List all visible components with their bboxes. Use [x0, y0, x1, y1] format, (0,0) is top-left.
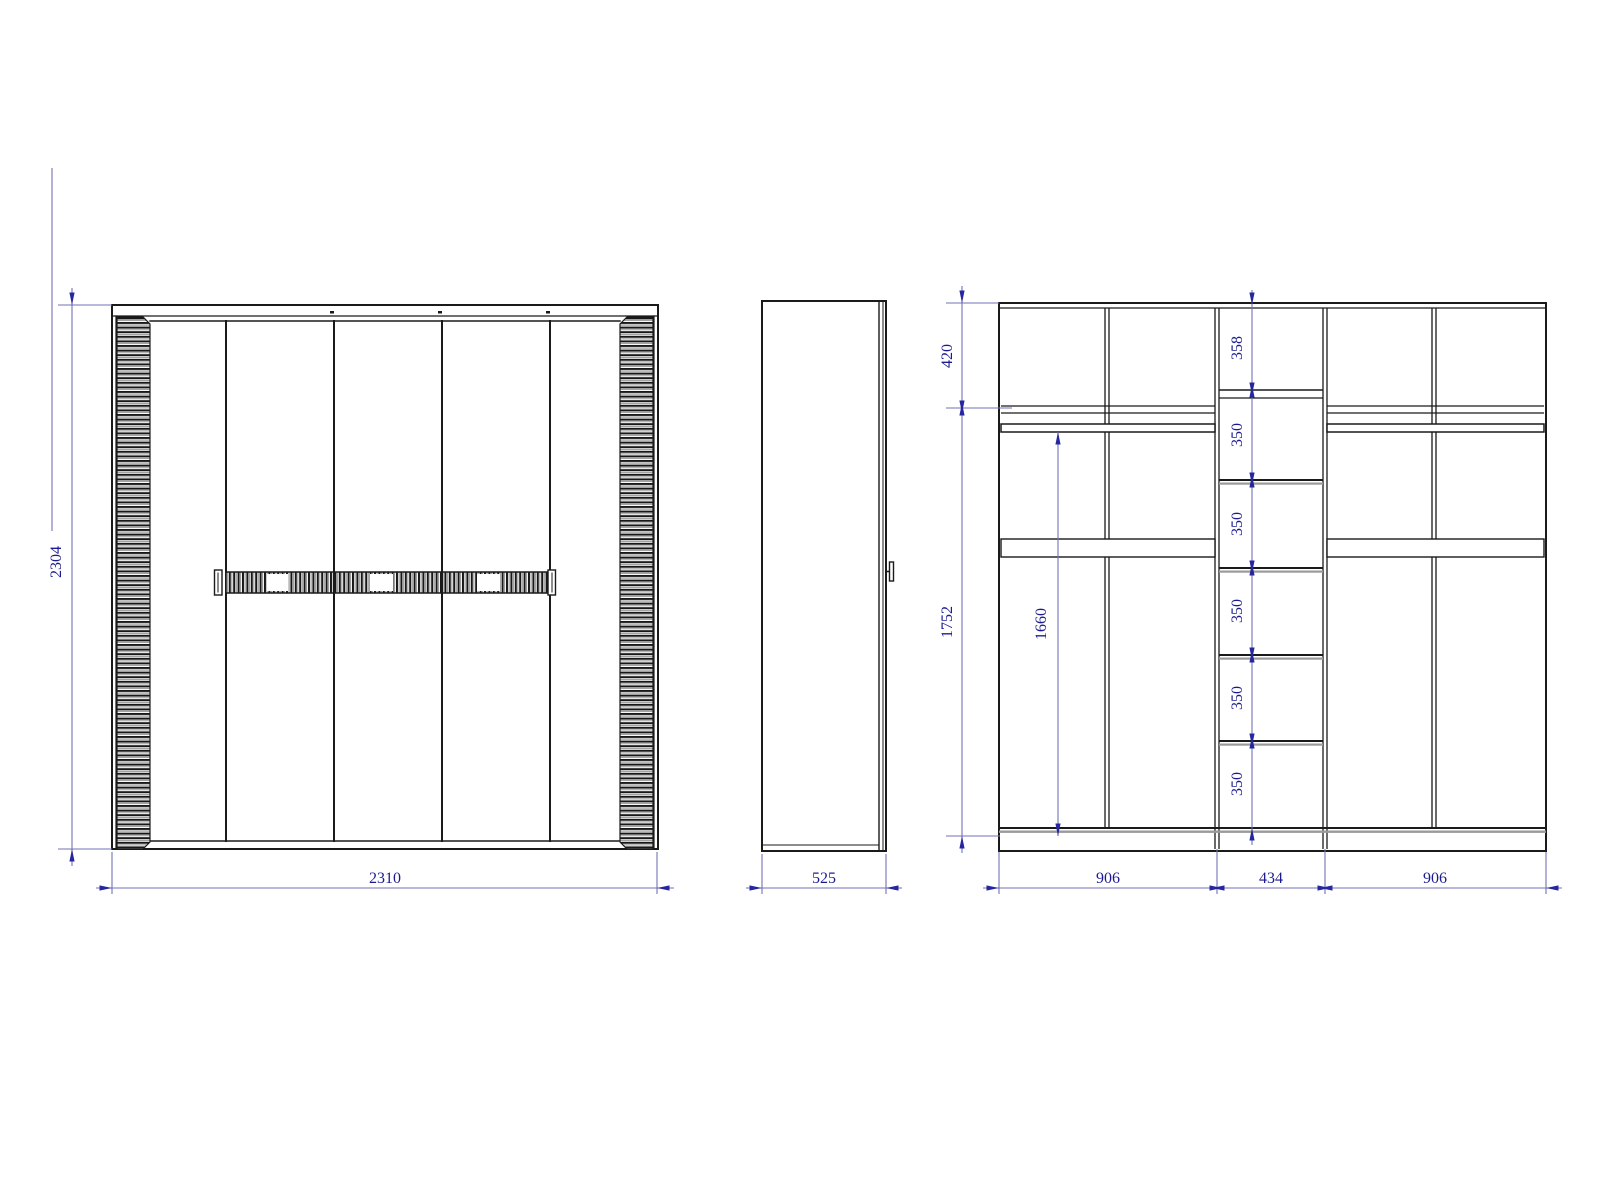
front-height-label: 2304	[48, 546, 65, 578]
cubby-gap-label: 358	[1229, 336, 1246, 360]
side-outer-box	[762, 301, 886, 851]
internal-top-height-label: 420	[939, 344, 956, 368]
arrowhead	[1212, 885, 1225, 890]
internal-body-height-label: 1752	[939, 606, 956, 638]
arrowhead	[886, 885, 899, 890]
cubby-gap-label: 350	[1229, 686, 1246, 710]
hanging-height-label: 1660	[1033, 608, 1050, 640]
decor-strip-window	[267, 574, 288, 591]
cubby-gap-label: 350	[1229, 512, 1246, 536]
drawing-canvas: 2304 2310 525 420 1752 1660	[0, 0, 1600, 1200]
pilaster-left-stripes	[117, 317, 150, 849]
internal-view	[999, 303, 1546, 851]
decor-strip	[226, 572, 550, 593]
arrowhead	[1320, 885, 1333, 890]
hanging-rail-right	[1327, 424, 1544, 432]
arrowhead	[657, 885, 670, 890]
bottom-shelf-shadow	[999, 831, 1546, 833]
hanging-rail-left	[1001, 424, 1215, 432]
arrowhead	[69, 849, 74, 862]
arrowhead	[987, 885, 1000, 890]
mid-shelf-right	[1327, 539, 1544, 557]
section-width-label: 906	[1096, 870, 1120, 887]
front-width-label: 2310	[369, 870, 401, 887]
front-view	[112, 305, 658, 849]
arrowhead	[69, 293, 74, 306]
arrowhead	[959, 836, 964, 849]
internal-outer-box	[999, 303, 1546, 851]
arrowhead	[959, 291, 964, 304]
front-handle-right	[548, 570, 556, 595]
decor-strip-window	[370, 574, 393, 591]
side-view	[762, 301, 894, 851]
arrowhead	[100, 885, 113, 890]
decor-strip-window	[477, 574, 500, 591]
cubby-gap-label: 350	[1229, 599, 1246, 623]
arrowhead	[750, 885, 763, 890]
front-handle-left	[215, 570, 223, 595]
section-width-label: 434	[1259, 870, 1283, 887]
side-handle	[886, 562, 894, 581]
cubby-gap-label: 350	[1229, 423, 1246, 447]
pilaster-right-stripes	[620, 317, 653, 849]
cornice-mark	[438, 311, 442, 314]
arrowhead	[959, 403, 964, 416]
cornice-mark	[546, 311, 550, 314]
wardrobe-drawing: 2304 2310 525 420 1752 1660	[0, 0, 1600, 1200]
arrowhead	[1546, 885, 1559, 890]
cornice-mark	[330, 311, 334, 314]
side-depth-label: 525	[812, 870, 836, 887]
mid-shelf-left	[1001, 539, 1215, 557]
section-width-label: 906	[1423, 870, 1447, 887]
cubby-gap-label: 350	[1229, 772, 1246, 796]
